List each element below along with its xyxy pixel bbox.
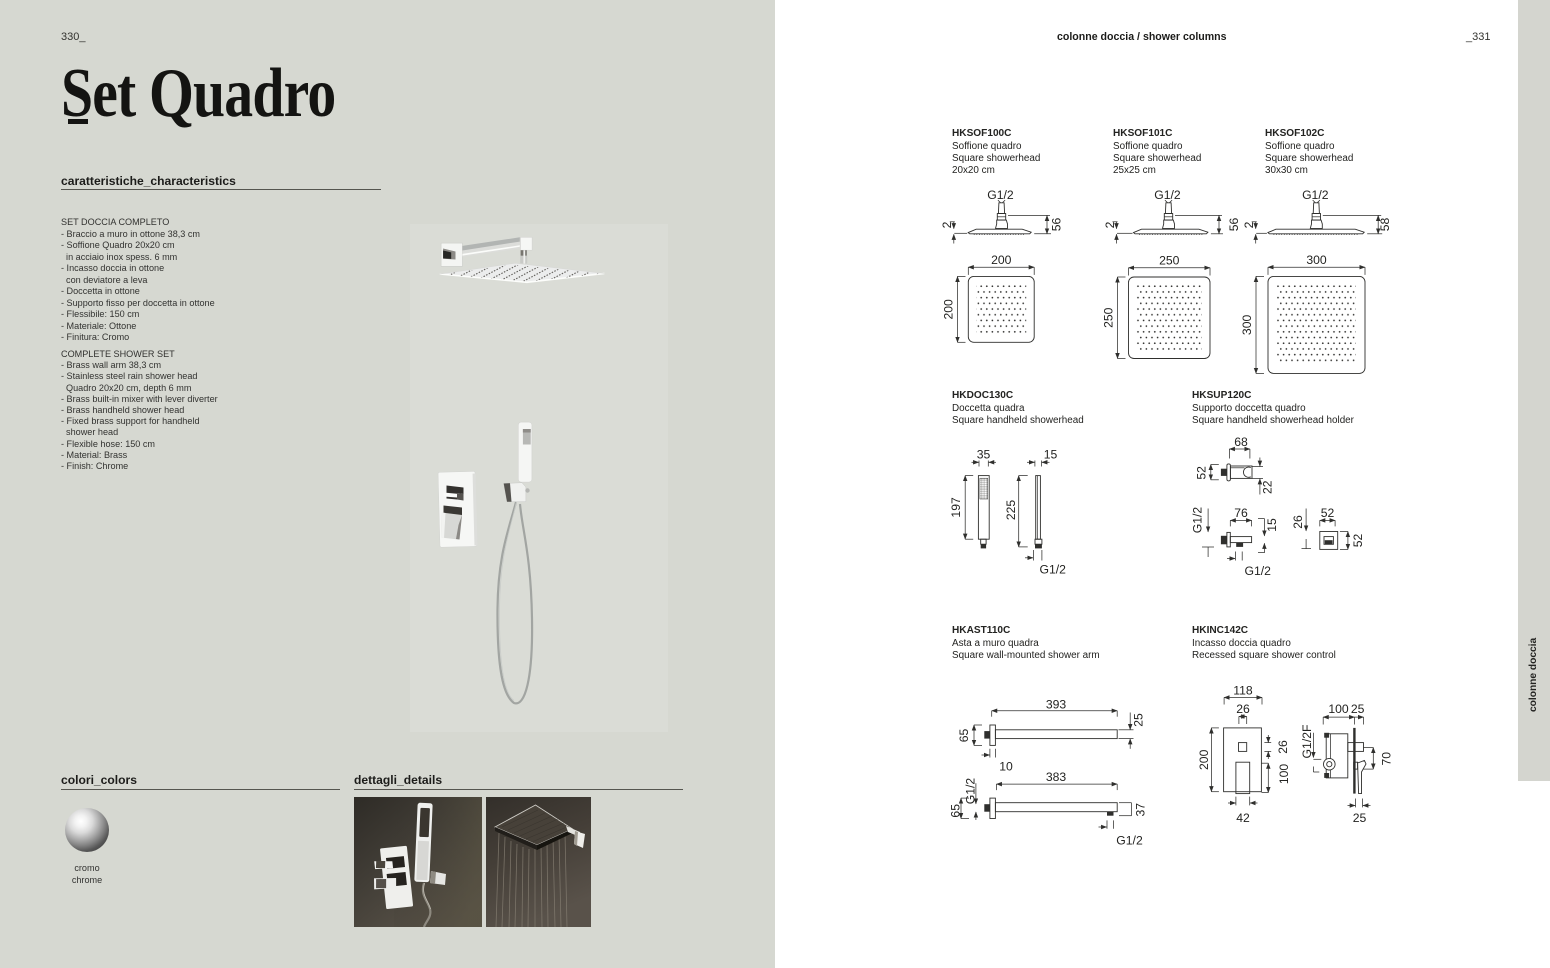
svg-text:200: 200 <box>991 253 1012 267</box>
svg-text:200: 200 <box>1197 749 1211 770</box>
svg-text:Soffione quadro: Soffione quadro <box>952 141 1022 152</box>
svg-text:G1/2: G1/2 <box>1245 564 1272 578</box>
svg-text:197: 197 <box>949 497 963 518</box>
svg-text:225: 225 <box>1004 500 1018 521</box>
svg-text:2: 2 <box>1242 221 1256 228</box>
svg-text:68: 68 <box>1234 435 1248 449</box>
svg-text:G1/2F: G1/2F <box>1300 725 1314 759</box>
svg-text:300: 300 <box>1240 315 1254 336</box>
svg-text:G1/2: G1/2 <box>1116 834 1143 848</box>
svg-text:G1/2: G1/2 <box>1040 563 1067 577</box>
svg-text:HKSUP120C: HKSUP120C <box>1192 390 1252 401</box>
svg-text:2: 2 <box>1103 221 1117 228</box>
svg-text:35: 35 <box>977 448 991 462</box>
svg-text:52: 52 <box>1321 506 1335 520</box>
svg-text:200: 200 <box>942 299 956 320</box>
svg-text:30x30 cm: 30x30 cm <box>1265 165 1308 176</box>
svg-text:Doccetta quadra: Doccetta quadra <box>952 403 1025 414</box>
svg-text:10: 10 <box>999 760 1013 774</box>
svg-text:15: 15 <box>1044 448 1058 462</box>
svg-text:Square handheld showerhead hol: Square handheld showerhead holder <box>1192 415 1355 426</box>
svg-text:Square showerhead: Square showerhead <box>1113 153 1201 164</box>
svg-text:26: 26 <box>1236 702 1250 716</box>
svg-text:HKAST110C: HKAST110C <box>952 625 1011 636</box>
svg-text:56: 56 <box>1050 218 1064 232</box>
svg-text:100: 100 <box>1328 702 1349 716</box>
svg-text:58: 58 <box>1378 218 1392 232</box>
svg-text:Asta a muro quadra: Asta a muro quadra <box>952 638 1039 649</box>
svg-text:G1/2: G1/2 <box>964 778 978 805</box>
svg-text:65: 65 <box>949 804 963 818</box>
svg-text:HKINC142C: HKINC142C <box>1192 625 1249 636</box>
svg-text:15: 15 <box>1265 518 1279 532</box>
svg-text:383: 383 <box>1046 770 1067 784</box>
svg-text:G1/2: G1/2 <box>1191 507 1205 534</box>
svg-text:Recessed square shower control: Recessed square shower control <box>1192 650 1336 661</box>
svg-text:22: 22 <box>1261 480 1275 494</box>
svg-text:25: 25 <box>1132 713 1146 727</box>
svg-text:2: 2 <box>940 221 954 228</box>
svg-text:52: 52 <box>1351 534 1365 548</box>
svg-text:76: 76 <box>1234 506 1248 520</box>
svg-text:Square showerhead: Square showerhead <box>952 153 1040 164</box>
svg-text:26: 26 <box>1276 740 1290 754</box>
svg-text:25: 25 <box>1353 811 1367 825</box>
svg-text:393: 393 <box>1046 698 1067 712</box>
svg-text:Square handheld showerhead: Square handheld showerhead <box>952 415 1084 426</box>
svg-text:118: 118 <box>1233 684 1253 698</box>
svg-text:HKSOF101C: HKSOF101C <box>1113 128 1173 139</box>
svg-text:Square showerhead: Square showerhead <box>1265 153 1353 164</box>
svg-text:56: 56 <box>1227 218 1241 232</box>
svg-text:25x25 cm: 25x25 cm <box>1113 165 1156 176</box>
svg-text:HKSOF100C: HKSOF100C <box>952 128 1012 139</box>
svg-text:Square wall-mounted shower arm: Square wall-mounted shower arm <box>952 650 1100 661</box>
svg-text:G1/2: G1/2 <box>1154 188 1181 202</box>
svg-text:65: 65 <box>957 729 971 743</box>
svg-text:HKDOC130C: HKDOC130C <box>952 390 1014 401</box>
svg-text:100: 100 <box>1277 764 1291 785</box>
svg-text:Supporto doccetta quadro: Supporto doccetta quadro <box>1192 403 1306 414</box>
svg-text:42: 42 <box>1236 811 1250 825</box>
svg-text:250: 250 <box>1159 253 1180 267</box>
svg-text:37: 37 <box>1134 803 1148 817</box>
svg-text:Incasso doccia quadro: Incasso doccia quadro <box>1192 638 1291 649</box>
svg-text:250: 250 <box>1102 307 1116 328</box>
svg-text:70: 70 <box>1379 752 1393 766</box>
svg-text:52: 52 <box>1194 466 1208 480</box>
svg-text:Soffione quadro: Soffione quadro <box>1113 141 1183 152</box>
svg-text:26: 26 <box>1291 515 1305 529</box>
svg-text:Soffione quadro: Soffione quadro <box>1265 141 1335 152</box>
svg-text:G1/2: G1/2 <box>987 188 1014 202</box>
svg-text:G1/2: G1/2 <box>1302 188 1329 202</box>
svg-text:300: 300 <box>1306 253 1327 267</box>
svg-text:25: 25 <box>1351 702 1365 716</box>
svg-text:20x20 cm: 20x20 cm <box>952 165 995 176</box>
svg-text:HKSOF102C: HKSOF102C <box>1265 128 1325 139</box>
